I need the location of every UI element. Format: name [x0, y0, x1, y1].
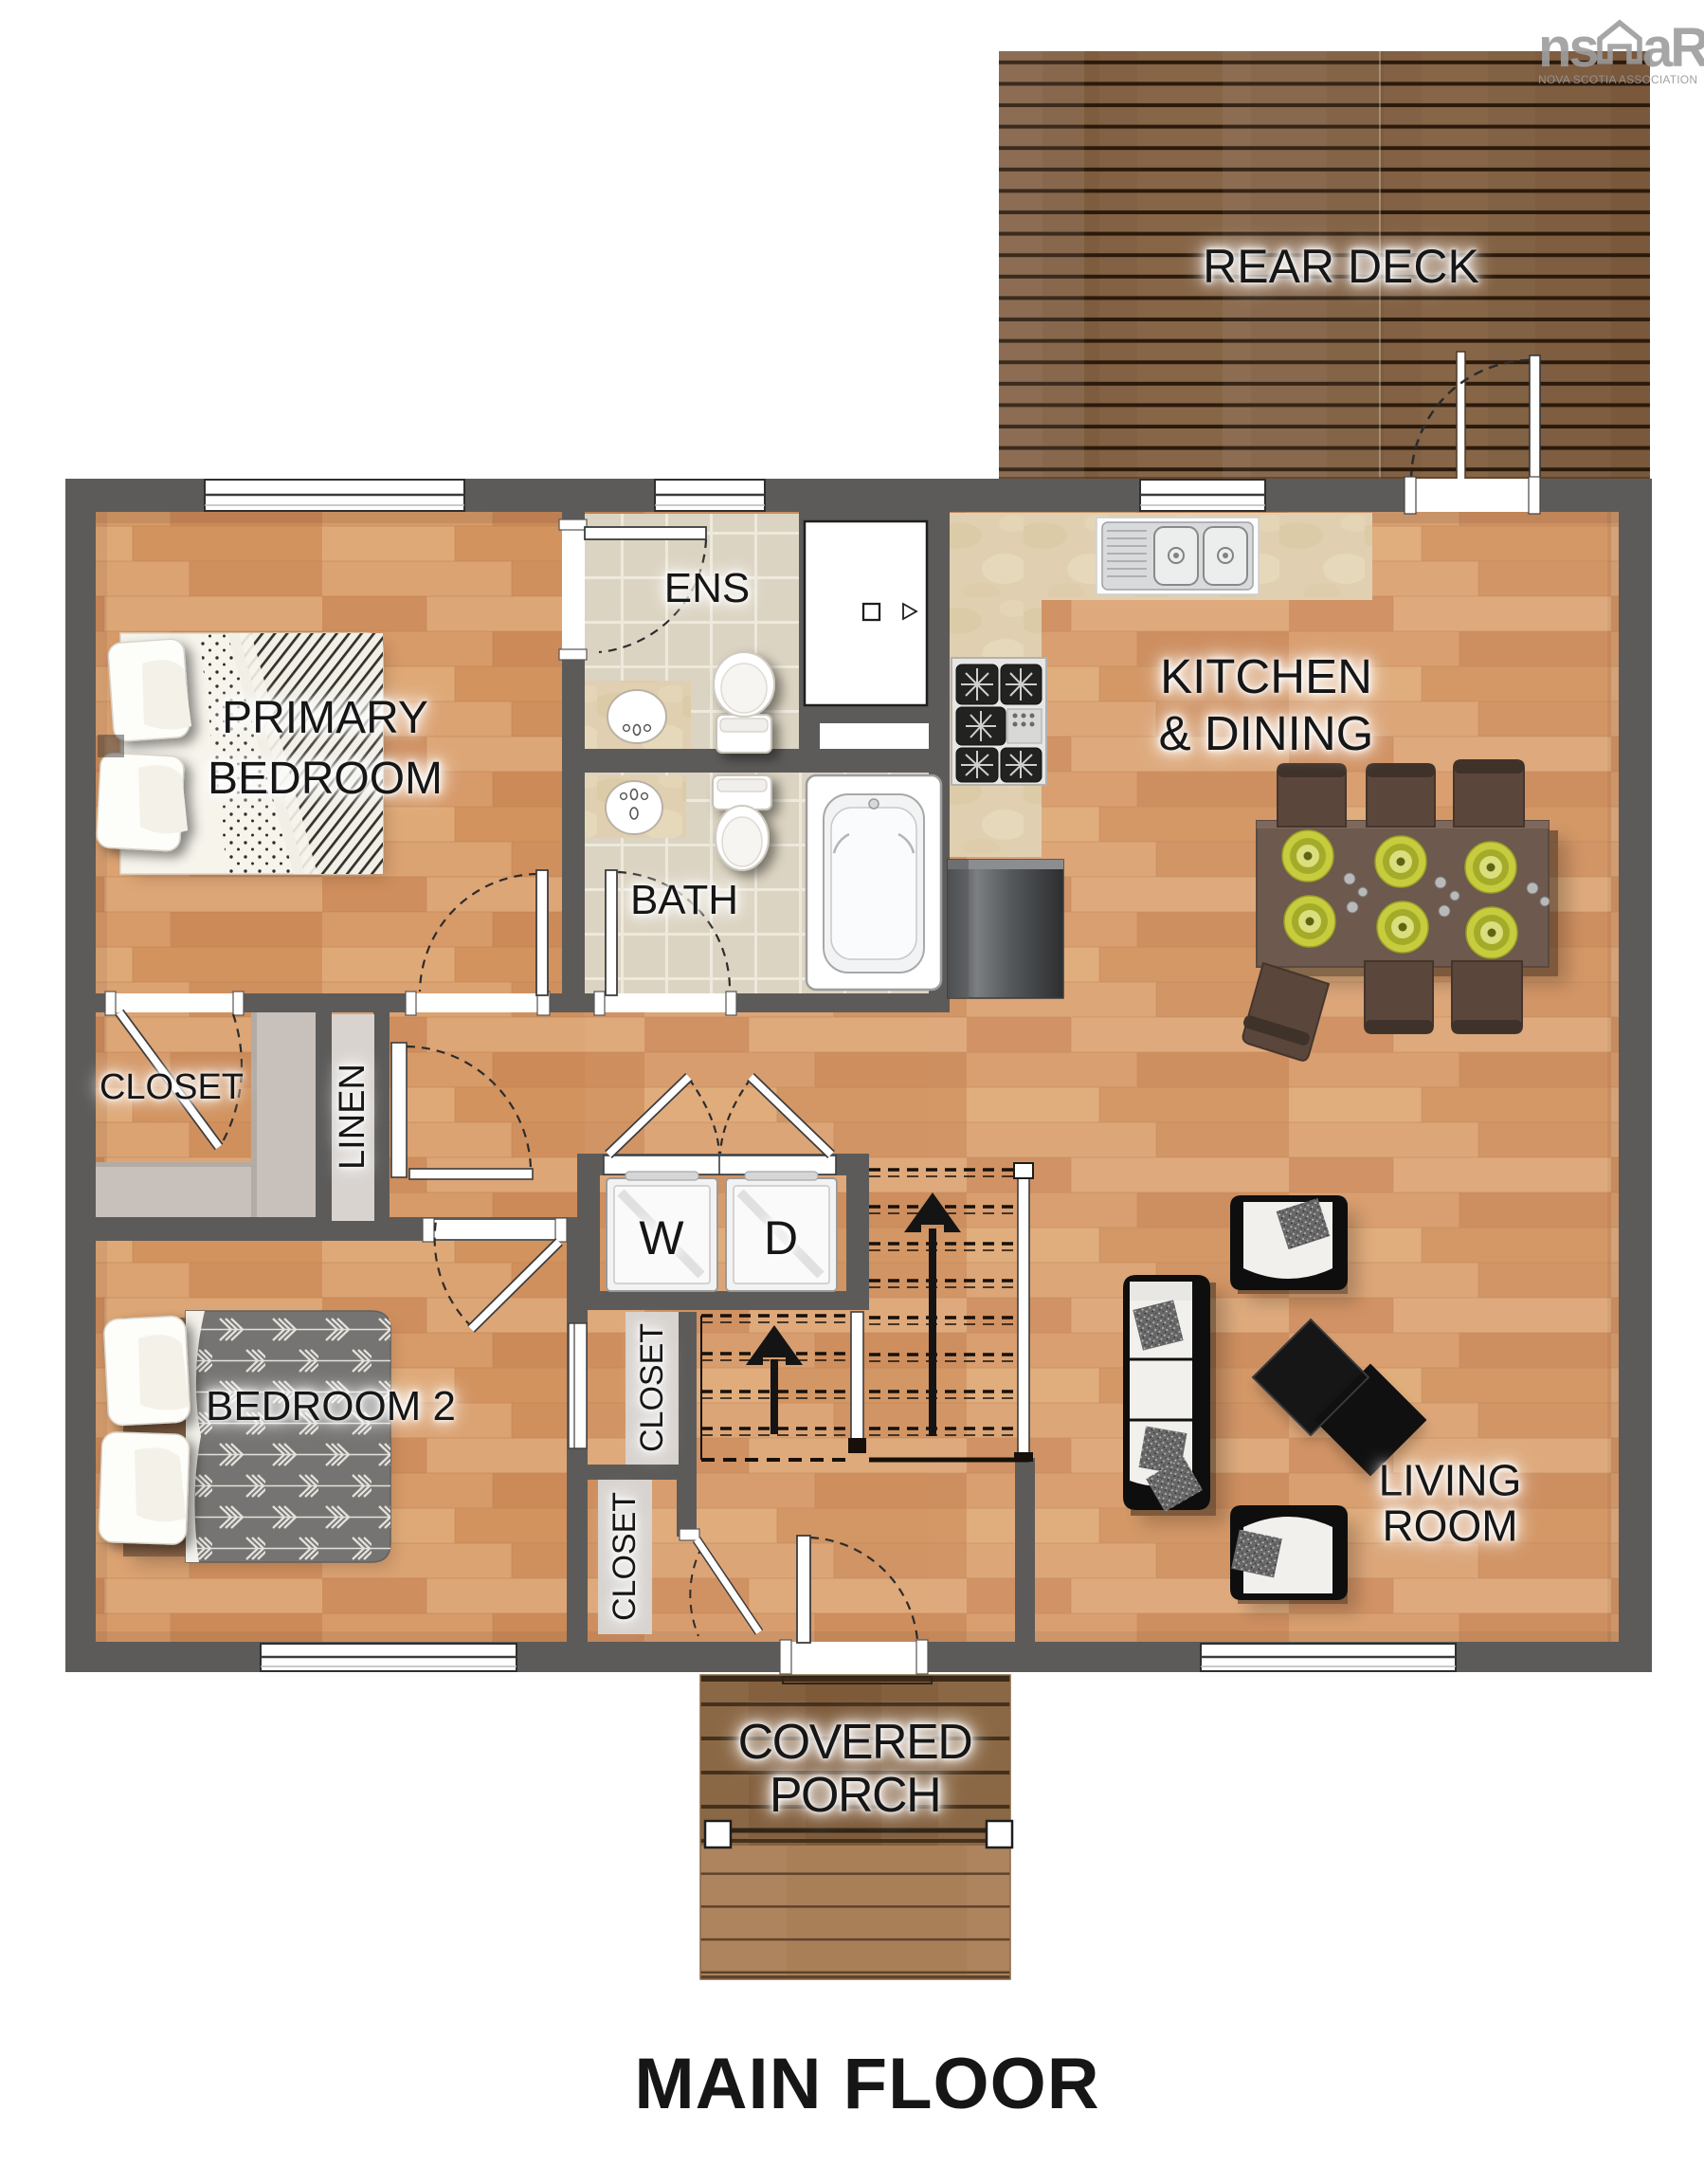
svg-text:ns: ns	[1538, 17, 1597, 79]
svg-text:aR: aR	[1642, 17, 1704, 79]
svg-text:NOVA SCOTIA ASSOCIATION: NOVA SCOTIA ASSOCIATION	[1538, 73, 1697, 86]
